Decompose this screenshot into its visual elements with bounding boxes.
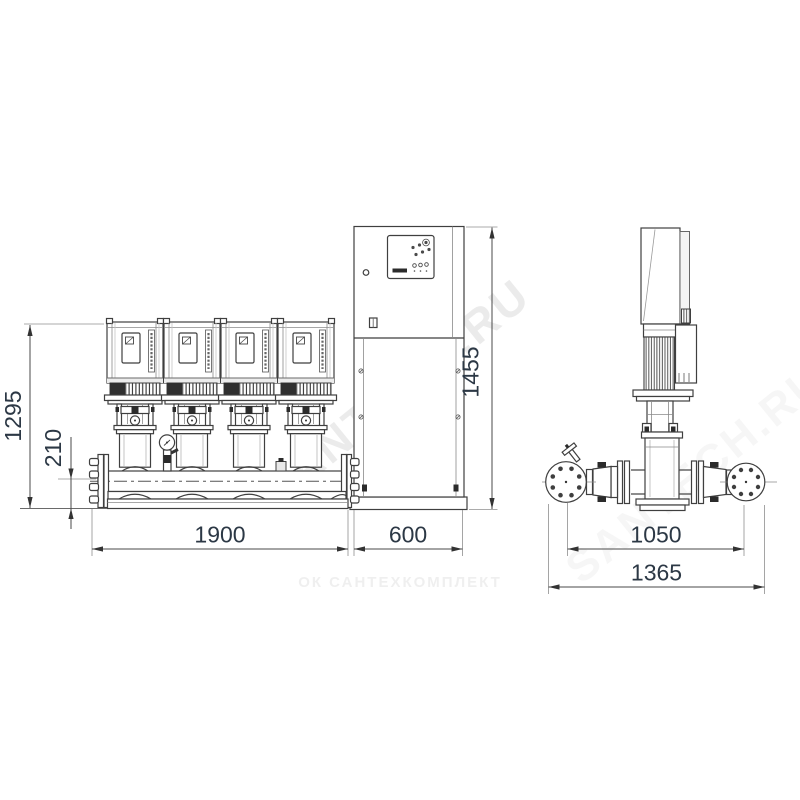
brand-logo-bar — [393, 269, 408, 273]
control-cabinet — [350, 227, 467, 510]
front-view — [20, 227, 467, 510]
dim-cabinet-width: 600 — [354, 522, 463, 552]
dim-label-600: 600 — [389, 522, 427, 548]
dim-pump-base-width: 1900 — [92, 522, 348, 552]
technical-drawing-page: SANTECH.RU SANTECH.RU ОК САНТЕХКОМПЛЕКТ — [0, 0, 800, 800]
pump-unit-1 — [105, 319, 166, 472]
watermark-footer: ОК САНТЕХКОМПЛЕКТ — [298, 574, 502, 591]
side-suction-branch — [542, 440, 645, 503]
watermark-layer: SANTECH.RU SANTECH.RU ОК САНТЕХКОМПЛЕКТ — [250, 268, 800, 593]
side-motor — [641, 228, 697, 390]
pressure-gauge-icon — [159, 435, 178, 471]
motor-connector — [682, 309, 691, 323]
cabinet-handle — [370, 318, 378, 328]
pump-unit-3 — [219, 319, 280, 472]
cabinet-display-panel — [388, 236, 435, 279]
dim-label-1295: 1295 — [0, 390, 26, 441]
dim-label-1365: 1365 — [631, 560, 682, 586]
base-frame — [20, 492, 348, 509]
dim-label-1050: 1050 — [630, 522, 681, 548]
side-view — [542, 228, 777, 511]
dim-label-1455: 1455 — [458, 346, 484, 397]
motor-fins — [644, 337, 675, 390]
dim-label-210: 210 — [40, 429, 66, 467]
cabinet-plinth — [350, 497, 467, 510]
dim-label-1900: 1900 — [194, 522, 245, 548]
dim-total-height: 1295 — [0, 325, 33, 508]
booster-set-dimensional-drawing: SANTECH.RU SANTECH.RU ОК САНТЕХКОМПЛЕКТ — [0, 0, 800, 800]
